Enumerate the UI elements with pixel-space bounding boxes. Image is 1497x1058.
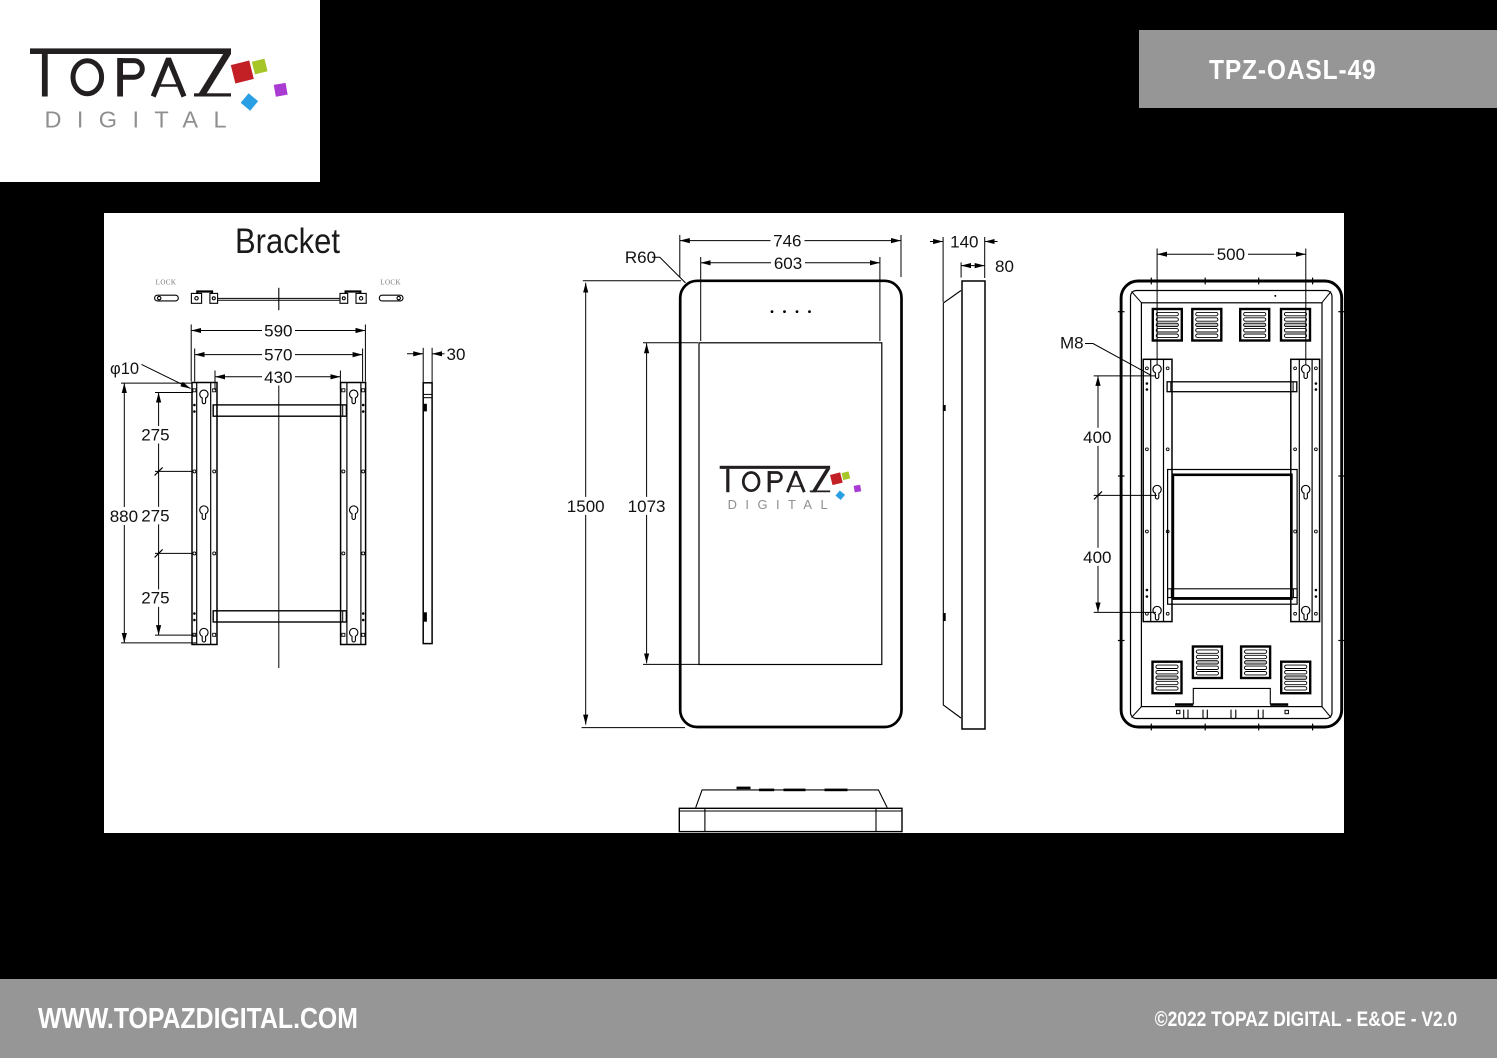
svg-text:400: 400: [1083, 548, 1111, 567]
svg-text:430: 430: [264, 368, 292, 387]
svg-text:140: 140: [950, 233, 978, 252]
svg-text:500: 500: [1217, 245, 1245, 264]
svg-text:590: 590: [264, 322, 292, 341]
svg-text:570: 570: [264, 346, 292, 365]
svg-text:746: 746: [773, 232, 801, 251]
svg-text:275: 275: [141, 426, 169, 445]
svg-text:M8: M8: [1060, 334, 1084, 353]
svg-text:603: 603: [774, 254, 802, 273]
svg-text:R60: R60: [625, 248, 656, 267]
svg-text:1073: 1073: [628, 497, 666, 516]
svg-text:LOCK: LOCK: [156, 279, 177, 287]
svg-text:400: 400: [1083, 428, 1111, 447]
svg-text:880: 880: [110, 507, 138, 526]
svg-text:275: 275: [141, 589, 169, 608]
svg-text:30: 30: [447, 345, 466, 364]
svg-text:Bracket: Bracket: [235, 222, 340, 261]
svg-text:φ10: φ10: [110, 360, 139, 378]
svg-text:LOCK: LOCK: [380, 279, 401, 287]
svg-text:1500: 1500: [567, 497, 605, 516]
svg-text:275: 275: [141, 506, 169, 525]
svg-text:80: 80: [995, 257, 1014, 276]
